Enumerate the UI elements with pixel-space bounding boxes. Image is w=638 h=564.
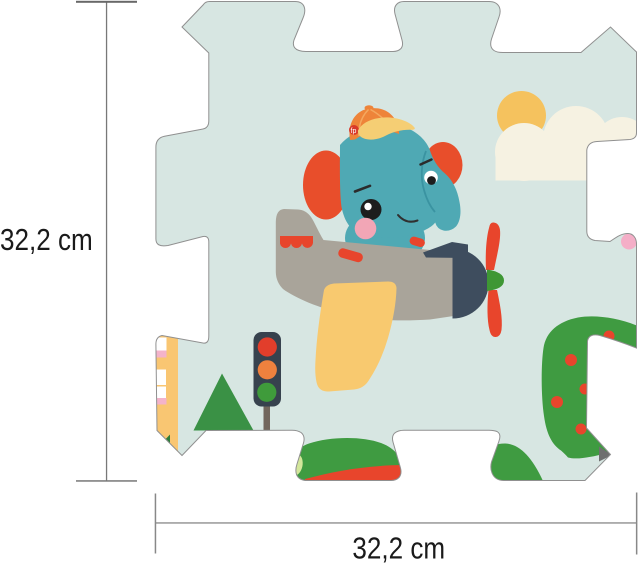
svg-text:32,2 cm: 32,2 cm (0, 223, 93, 257)
svg-text:32,2 cm: 32,2 cm (352, 532, 445, 564)
svg-text:fp: fp (351, 128, 357, 135)
